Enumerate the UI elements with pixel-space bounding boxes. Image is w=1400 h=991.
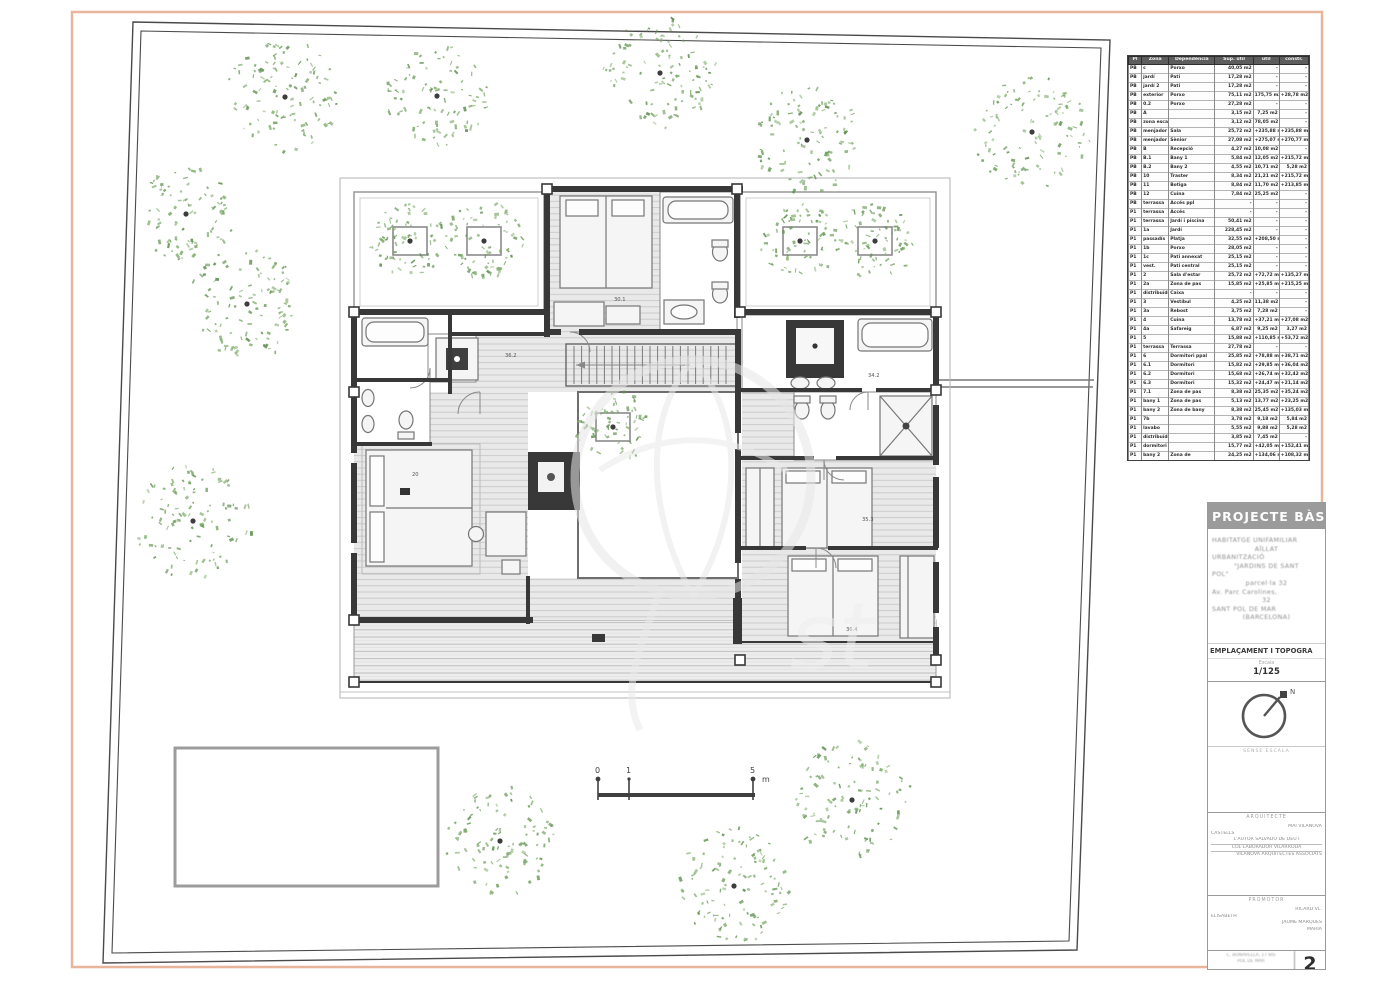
table-row: P1bany 1Zona de pas5,13 m213,77 m2+23,25… <box>1129 397 1309 406</box>
garden-tree <box>678 826 791 941</box>
scale-value: 1/125 <box>1208 667 1325 677</box>
table-row: P14Cuina13,78 m2+37,21 m2+27,08 m2 <box>1129 316 1309 325</box>
table-row: P11bPorxo28,05 m2-- <box>1129 244 1309 253</box>
table-row: P1bany 2Zona de24,25 m2+134,06 m2+108,32… <box>1129 451 1309 460</box>
sheet-number: 2 <box>1295 951 1325 970</box>
scale-label: Escala <box>1208 661 1325 666</box>
drawing-title: EMPLAÇAMENT I TOPOGRA <box>1208 643 1325 658</box>
area-table-column: Pl <box>1129 57 1142 65</box>
table-row: PB11Botiga8,84 m211,70 m2+213,85 m2 <box>1129 181 1309 190</box>
title-block: PROJECTE BÀS HABITATGE UNIFAMILIARAÏLLAT… <box>1207 502 1326 970</box>
table-row: PBjardíPati17,28 m2-- <box>1129 73 1309 82</box>
area-schedule-table: PlZonaDependènciaSup. útilútilconstr. PB… <box>1127 55 1310 461</box>
table-row: P11cPati annexat25,15 m2-- <box>1129 253 1309 262</box>
svg-text:34.2: 34.2 <box>868 373 880 379</box>
compass-caption: SENSE ESCALA <box>1208 746 1325 756</box>
north-arrow-icon: N <box>1208 682 1323 746</box>
table-row: P1terrassaTerrassa27,78 m2-- <box>1129 343 1309 352</box>
table-row: PBterrassaAccés ppl--- <box>1129 199 1309 208</box>
project-info-line: Av. Parc Carolines, <box>1212 589 1321 598</box>
table-row: P1vest.Pati central25,15 m2-- <box>1129 262 1309 271</box>
scale-tick-1: 1 <box>626 766 631 775</box>
table-row: P17b3,78 m29,18 m25,84 m2 <box>1129 415 1309 424</box>
table-row: P16.1Dormitori15,82 m2+29,85 m2+36,04 m2 <box>1129 361 1309 370</box>
title-block-footer: C. BONAVELLA, 17 BISPOL DE MAR 2 <box>1208 950 1325 970</box>
terrace-right <box>740 192 936 312</box>
promoter-line: ELISABETH <box>1211 914 1322 921</box>
table-row: P1distribuïdor 13,85 m27,45 m2- <box>1129 433 1309 442</box>
promoter-line: JAUME MARQUÈS <box>1211 920 1322 927</box>
table-row: PBA3,15 m27,25 m2- <box>1129 109 1309 118</box>
table-row: P16.3Dormitori15,32 m2+24,47 m2+21,14 m2 <box>1129 379 1309 388</box>
architect-label: ARQUITECTE <box>1211 815 1322 820</box>
promoter-line: MARIA <box>1211 927 1322 934</box>
table-row: P14aSafareig6,87 m29,25 m23,27 m2 <box>1129 325 1309 334</box>
table-row: PBcPorxo40,05 m2-- <box>1129 64 1309 73</box>
architect-line: L'AUTOR SALVADÓ DE DEU I <box>1211 837 1322 845</box>
table-row: PBB.2Bany 24,55 m210,71 m25,28 m2 <box>1129 163 1309 172</box>
project-info-line: AÏLLAT <box>1212 546 1321 555</box>
table-row: P1dormitori jove15,77 m2+42,05 m2+152,41… <box>1129 442 1309 451</box>
project-info-line: parcel·la 32 <box>1212 580 1321 589</box>
project-info-line: URBANITZACIÓ <box>1212 554 1321 563</box>
table-row: P1distribuïdorCaixa--- <box>1129 289 1309 298</box>
table-row: P13Vestíbul4,25 m211,38 m2- <box>1129 298 1309 307</box>
table-row: PBzona escala3,12 m278,05 m2- <box>1129 118 1309 127</box>
table-row: P1515,88 m2+110,85 m2+53,72 m2 <box>1129 334 1309 343</box>
table-row: P17.1Zona de pas8,38 m225,35 m2+35,24 m2 <box>1129 388 1309 397</box>
table-row: PBB.1Bany 15,84 m212,05 m2+215,72 m2 <box>1129 154 1309 163</box>
table-row: P1bany 2Zona de bany8,38 m225,45 m2+135,… <box>1129 406 1309 415</box>
project-info-line: HABITATGE UNIFAMILIAR <box>1212 537 1321 546</box>
area-table-header: PlZonaDependènciaSup. útilútilconstr. <box>1129 57 1309 65</box>
svg-text:30.1: 30.1 <box>614 297 626 303</box>
fence-line <box>938 380 1094 387</box>
garden-tree <box>147 167 233 260</box>
scale-bar: 0 1 5 m <box>595 766 770 800</box>
svg-text:N: N <box>1290 688 1295 696</box>
table-row: PB10Traster8,34 m221,21 m2+215,72 m2 <box>1129 172 1309 181</box>
area-table-column: Sup. útil <box>1215 57 1253 65</box>
project-info: HABITATGE UNIFAMILIARAÏLLATURBANITZACIÓ"… <box>1208 529 1325 643</box>
table-row: P11aJardí228,45 m2-- <box>1129 226 1309 235</box>
architect-line: CASTELLS <box>1211 831 1322 838</box>
area-table-column: útil <box>1253 57 1279 65</box>
area-table-column: constr. <box>1279 57 1308 65</box>
svg-text:st: st <box>790 583 877 690</box>
table-row: PB0.2Porxo27,28 m2-- <box>1129 100 1309 109</box>
project-info-line: 32 <box>1212 597 1321 606</box>
scale-tick-5: 5 <box>750 766 755 775</box>
table-row: P1terrassaAccés--- <box>1129 208 1309 217</box>
architect-line: VILANOVA ARQUITECTES ASSOCIATS <box>1211 852 1322 859</box>
promoter-line: RICARD VL. <box>1211 907 1322 914</box>
promoter-section: PROMOTOR RICARD VL.ELISABETHJAUME MARQUÈ… <box>1208 895 1325 950</box>
project-info-line: SANT POL DE MAR <box>1212 606 1321 615</box>
architect-section: ARQUITECTE MAI VILANOVACASTELLSL'AUTOR S… <box>1208 812 1325 895</box>
promoter-label: PROMOTOR <box>1211 898 1322 903</box>
table-row: PBBRecepció4,27 m210,08 m2- <box>1129 145 1309 154</box>
drawing-sheet: 30.136.234.22035.336.4 st 0 1 5 <box>0 0 1400 991</box>
table-row: P16.2Dormitori15,68 m2+26,74 m2+32,42 m2 <box>1129 370 1309 379</box>
table-row: P1passadísPlatja32,55 m2+208,50 m2- <box>1129 235 1309 244</box>
project-info-line: (BARCELONA) <box>1212 614 1321 623</box>
garden-tree <box>445 786 554 895</box>
project-info-line: POL" <box>1212 571 1321 580</box>
terrace-left <box>354 192 544 312</box>
garden-tree <box>228 43 338 154</box>
table-row: P13aRebost3,75 m27,28 m2- <box>1129 307 1309 316</box>
area-table-column: Zona <box>1142 57 1169 65</box>
table-row: PBexteriorPorxo75,11 m2175,75 m2+28,78 m… <box>1129 91 1309 100</box>
table-row: P16Dormitori ppal25,85 m2+78,88 m2+38,71… <box>1129 352 1309 361</box>
table-row: PB12Cuina7,84 m225,25 m2- <box>1129 190 1309 199</box>
table-row: P1terrassaJardí i piscina50,41 m2-- <box>1129 217 1309 226</box>
table-row: P12aZona de pas15,85 m2+25,85 m2+215,25 … <box>1129 280 1309 289</box>
table-row: PBmenjador 1Sènior27,08 m2+275,07 m2+270… <box>1129 136 1309 145</box>
garden-tree <box>192 249 293 357</box>
table-row: P12Sala d'estar25,72 m2+72,72 m2+135,27 … <box>1129 271 1309 280</box>
table-row: PBmenjadorSala25,72 m2+235,88 m2+235,88 … <box>1129 127 1309 136</box>
garden-tree <box>387 46 489 147</box>
footer-line: POL DE MAR <box>1210 959 1292 965</box>
project-type-header: PROJECTE BÀS <box>1208 503 1325 529</box>
svg-text:20: 20 <box>412 472 419 478</box>
garden-tree <box>973 76 1090 187</box>
area-table-column: Dependència <box>1169 57 1215 65</box>
svg-text:35.3: 35.3 <box>862 517 874 523</box>
scale-tick-0: 0 <box>595 766 600 775</box>
table-row: P1lavabo5,55 m29,88 m25,28 m2 <box>1129 424 1309 433</box>
garden-tree <box>137 465 253 579</box>
project-info-line: "JARDINS DE SANT <box>1212 563 1321 572</box>
svg-text:36.2: 36.2 <box>505 353 517 359</box>
north-arrow-box: N <box>1208 681 1325 746</box>
area-table-rows: PBcPorxo40,05 m2--PBjardíPati17,28 m2--P… <box>1129 64 1309 460</box>
table-row: PBjardí 2Pati17,28 m2-- <box>1129 82 1309 91</box>
architect-line: COL·LABORADOR VILARRODÀ <box>1211 845 1322 853</box>
scale-unit: m <box>762 775 770 784</box>
architect-line: MAI VILANOVA <box>1211 824 1322 831</box>
footer-address: C. BONAVELLA, 17 BISPOL DE MAR <box>1208 951 1295 970</box>
garden-tree <box>602 17 717 130</box>
pool <box>175 748 438 886</box>
scale-box: Escala 1/125 <box>1208 658 1325 681</box>
garden-tree <box>795 739 912 858</box>
